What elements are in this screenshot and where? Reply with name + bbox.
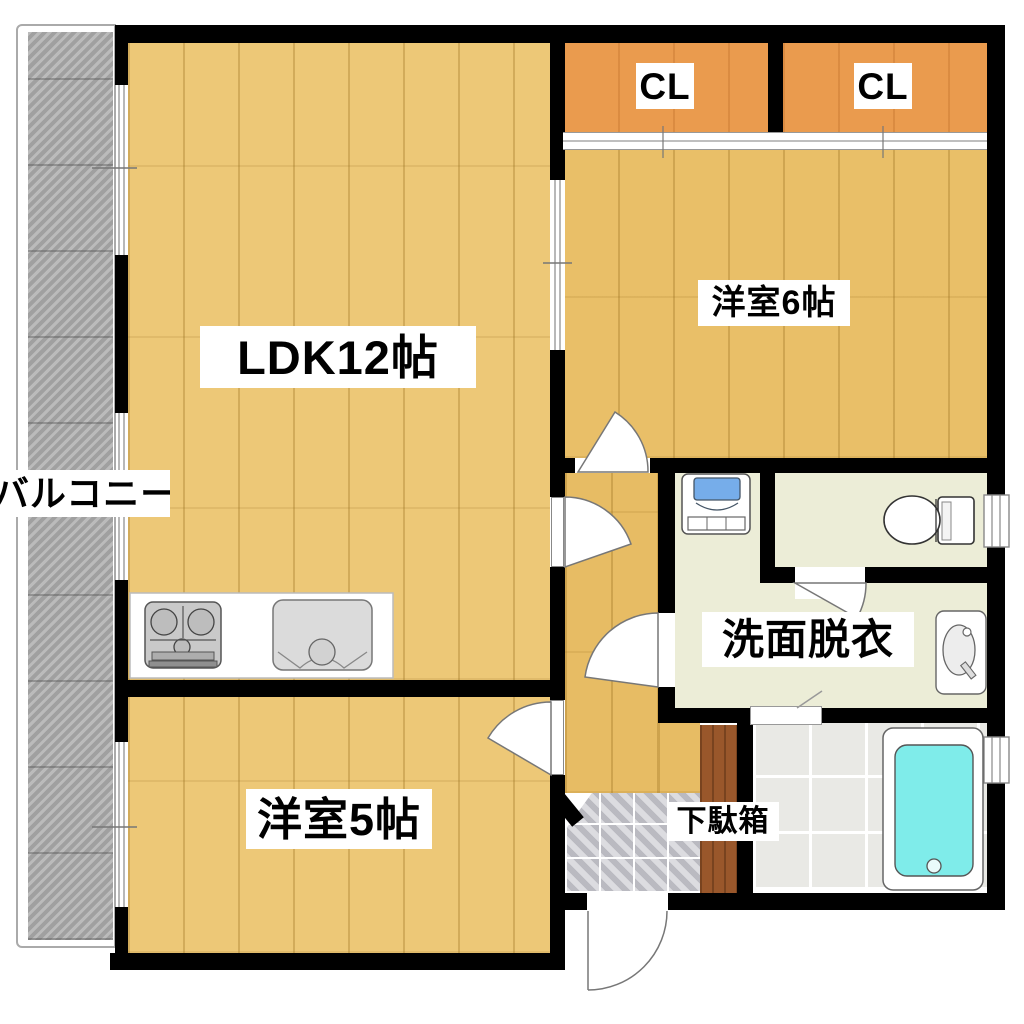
label-room6: 洋室6帖 — [698, 280, 850, 326]
floor-plan: LDK12帖 洋室6帖 洋室5帖 洗面脱衣 下駄箱 CL CL バルコニー — [0, 0, 1024, 1024]
label-room5: 洋室5帖 — [246, 789, 432, 849]
partition-window-lines — [543, 180, 572, 350]
washbasin — [936, 611, 986, 694]
washing-machine-pan — [682, 474, 750, 534]
bathroom-window — [984, 737, 1009, 783]
bathroom-door-fold-line — [797, 691, 822, 708]
kitchen-sink — [273, 600, 372, 670]
label-shoe-cabinet: 下駄箱 — [667, 802, 779, 841]
door-arc-ldk — [565, 497, 631, 567]
gas-stove — [145, 602, 221, 668]
label-closet-left: CL — [636, 63, 694, 109]
entrance-door — [588, 911, 667, 990]
closet-door-track — [563, 126, 987, 158]
balcony-window-3 — [92, 742, 137, 907]
label-balcony: バルコニー — [0, 470, 170, 517]
label-closet-right: CL — [854, 63, 912, 109]
balcony-window-1 — [92, 85, 137, 255]
label-washroom: 洗面脱衣 — [702, 612, 914, 667]
door-arc-washroom — [585, 613, 658, 687]
door-arc-room6 — [578, 412, 648, 472]
door-arc-room5 — [488, 702, 551, 775]
entrance-diagonal-wall — [556, 795, 578, 822]
toilet — [884, 496, 974, 544]
toilet-window — [984, 495, 1009, 547]
bathtub — [883, 728, 983, 890]
label-ldk: LDK12帖 — [200, 326, 476, 388]
